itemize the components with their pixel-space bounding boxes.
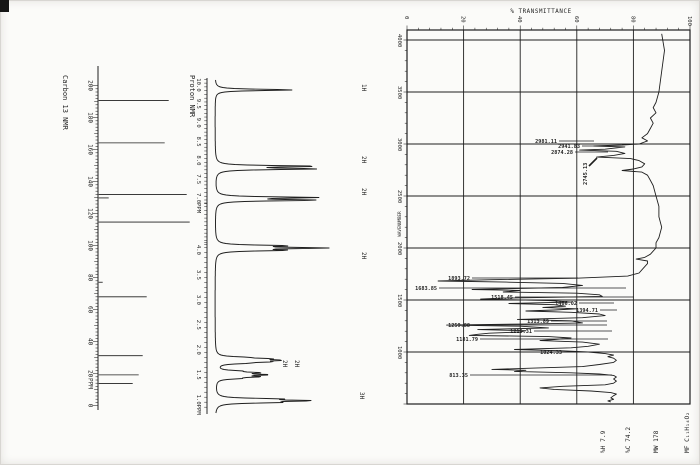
integration-label: 2H [360, 188, 367, 196]
transmittance-tick-label: 0 [403, 16, 409, 19]
ir-peak-label: 1181.79 [456, 337, 478, 343]
molecular-formula: MF C₁₁H₁₄O₂ [684, 412, 691, 453]
proton-nmr-panel: Proton NMR 10.09.59.08.58.07.57.0PPM4.03… [188, 75, 329, 415]
ir-peak-label: 1024.33 [540, 350, 562, 356]
ir-peak-label: 1518.45 [491, 295, 513, 301]
integration-label: 2H [281, 360, 288, 368]
percent-carbon: %C 74.2 [625, 427, 632, 453]
ir-peak-label: 1313.89 [527, 319, 549, 325]
ppm-tick-label: 8.0 [195, 155, 201, 165]
ppm-tick-label: 40 [87, 338, 94, 346]
ir-y-axis-label: WAVENUMBER [397, 211, 402, 237]
ppm-tick-label: 60 [87, 306, 94, 314]
wavenumber-tick-label: 3500 [396, 86, 402, 99]
ir-peak-label: 1466.02 [555, 301, 577, 307]
scanned-spectra-sheet: Carbon 13 NMR 20018016014012010080604020… [0, 0, 700, 465]
ppm-tick-label: 20 [87, 370, 94, 378]
ppm-tick-label: 3.0 [195, 295, 201, 305]
integration-label: 1H [360, 84, 367, 92]
ir-peak-pointer-2745 [589, 158, 597, 166]
ppm-tick-label: 3.5 [195, 270, 201, 280]
ppm-tick-label: 140 [87, 176, 94, 187]
ir-plot-border [407, 30, 690, 404]
wavenumber-tick-label: 2000 [396, 242, 402, 255]
wavenumber-tick-label: 1500 [396, 294, 402, 307]
scan-corner-mark [0, 0, 9, 12]
ppm-tick-label: 180 [87, 112, 94, 123]
ir-peak-label: 2981.11 [535, 139, 557, 145]
carbon13-title: Carbon 13 NMR [61, 75, 69, 131]
ir-title: % TRANSMITTANCE [510, 9, 571, 15]
ppm-tick-label: 2.0 [195, 345, 201, 355]
ppm-tick-label: 2.5 [195, 320, 201, 330]
proton-title: Proton NMR [188, 75, 196, 118]
ir-peak-label-2745: 2745.13 [583, 163, 589, 185]
wavenumber-tick-label: 4000 [396, 34, 402, 47]
ppm-tick-label: 7.5 [195, 174, 201, 184]
ir-peak-label: 1683.85 [415, 286, 437, 292]
ppm-tick-label: 4.0 [195, 245, 201, 255]
transmittance-tick-label: 100 [686, 16, 692, 26]
ppm-tick-label: 1.5 [195, 370, 201, 380]
spectra-canvas: Carbon 13 NMR 20018016014012010080604020… [0, 0, 700, 465]
ppm-tick-label: 9.5 [195, 99, 201, 109]
carbon13-nmr-panel: Carbon 13 NMR 20018016014012010080604020… [61, 66, 190, 410]
ir-peak-label: 1893.72 [448, 276, 470, 282]
ppm-unit-label: PPM [87, 378, 94, 389]
ppm-tick-label: 160 [87, 144, 94, 155]
proton-curve [215, 80, 329, 413]
ppm-tick-label: 9.0 [195, 118, 201, 128]
ir-curve [438, 34, 664, 402]
ppm-tick-label: 0 [87, 404, 94, 408]
ir-peak-label: 813.35 [449, 373, 468, 379]
transmittance-tick-label: 60 [573, 16, 579, 23]
ppm-tick-label: 80 [87, 274, 94, 282]
ppm-tick-label: 100 [87, 240, 94, 251]
ir-peak-label: 1259.88 [448, 323, 470, 329]
integration-label: 2H [360, 252, 367, 260]
ppm-tick-label: 120 [87, 208, 94, 219]
wavenumber-tick-label: 2500 [396, 190, 402, 203]
integration-label: 3H [358, 392, 365, 400]
integration-label: 2H [360, 156, 367, 164]
molecular-weight: MW 178 [653, 430, 660, 453]
percent-hydrogen: %H 7.9 [600, 430, 607, 453]
ppm-tick-label: 10.0 [195, 78, 201, 91]
ir-peak-label: 2874.28 [551, 150, 573, 156]
ppm-tick-label: 7.0 [195, 193, 201, 203]
ir-peak-label: 1394.71 [576, 308, 598, 314]
ppm-tick-label: 200 [87, 80, 94, 91]
ppm-tick-label: 8.5 [195, 136, 201, 146]
ir-info-block: MF C₁₁H₁₄O₂ MW 178 %C 74.2 %H 7.9 [600, 412, 691, 453]
transmittance-tick-label: 80 [629, 16, 635, 23]
ir-peak-label: 1215.31 [510, 329, 532, 335]
wavenumber-tick-label: 3000 [396, 138, 402, 151]
integration-label: 2H [293, 360, 300, 368]
ppm-tick-label: 1.0 [195, 395, 201, 405]
transmittance-tick-label: 20 [460, 16, 466, 23]
ppm-unit-label: PPM [195, 203, 201, 214]
transmittance-tick-label: 40 [516, 16, 522, 23]
wavenumber-tick-label: 1000 [396, 346, 402, 359]
ir-spectrum-panel: % TRANSMITTANCE WAVENUMBER 2745.13 MF C₁… [396, 9, 692, 453]
ppm-unit-label: PPM [195, 405, 201, 416]
